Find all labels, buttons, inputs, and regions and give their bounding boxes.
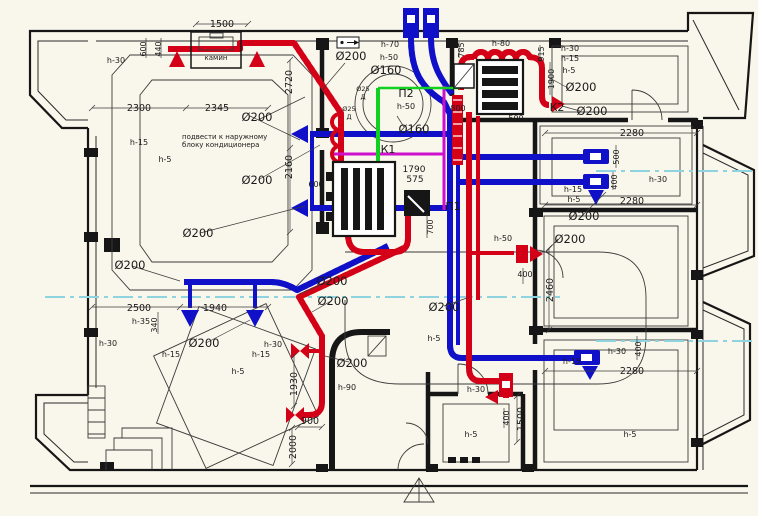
plan-label-h-30: h-30 [107,56,125,65]
plan-label-h-50: h-50 [494,234,512,243]
plan-label-800: 800 [450,104,465,113]
labels-layer: 1500600440каминh-302300234527202160подве… [99,19,667,459]
plan-label-h-5: h-5 [567,195,580,204]
plan-label-2160: 2160 [284,155,295,179]
north-arrow [404,478,434,502]
plan-label-700: 700 [426,219,435,234]
plan-label-785: 785 [457,42,466,57]
plan-label-1900: 1900 [547,69,556,89]
plan-label-2000: 2000 [288,435,299,459]
plan-label-Ø25: Ø25 [356,85,369,93]
plan-label-Д: Д [360,93,365,101]
plan-label-600: 600 [139,41,148,56]
plan-label-h-5: h-5 [231,367,244,376]
plan-label-П2: П2 [398,87,413,100]
plan-label-Ø200: Ø200 [317,294,348,308]
stairs [88,386,172,470]
plan-label-1930: 1930 [289,372,300,396]
ahu-k1 [326,162,395,236]
plan-label-Ø200: Ø200 [241,173,272,187]
plan-label-камин: камин [205,54,228,62]
plan-label-1500: 1500 [516,407,527,431]
plan-label-2280: 2280 [620,366,644,377]
plan-label-900: 900 [301,416,319,427]
plan-label-h-5: h-5 [427,334,440,343]
plan-label-h-30: h-30 [561,44,579,53]
plan-label-915: 915 [537,46,546,61]
plan-label-Ø200: Ø200 [182,226,213,240]
plan-label-h-15: h-15 [563,357,581,366]
plan-label-Ø200: Ø200 [565,80,596,94]
drawing-sheet: Ventilation and air-conditioning duct la… [0,0,758,516]
plan-label-h-90: h-90 [338,383,356,392]
plan-label-К2: К2 [550,101,565,114]
plan-label-1790: 1790 [403,165,426,175]
plan-label-h-5: h-5 [158,155,171,164]
plan-label-Ø200: Ø200 [576,104,607,118]
plan-label-600: 600 [308,180,323,189]
plan-label-П1: П1 [445,200,460,213]
plan-label-Ø200: Ø200 [335,49,366,63]
plan-label-h-5: h-5 [623,430,636,439]
roof-exhaust-stubs [403,8,439,38]
section-lines [45,171,754,341]
plan-label-h-30: h-30 [99,339,117,348]
plan-label-h-15: h-15 [130,138,148,147]
fan-p1 [404,190,430,216]
plan-label-блоку кондиционера: блоку кондиционера [182,141,259,149]
plan-label-Ø160: Ø160 [370,63,401,77]
plan-label-2280: 2280 [620,128,644,139]
plan-label-h-15: h-15 [162,350,180,359]
dimension-line [200,206,305,233]
plan-label-h-70: h-70 [381,40,399,49]
plan-label-h-5: h-5 [464,430,477,439]
plan-label-h-15: h-15 [252,350,270,359]
plan-label-340: 340 [150,317,159,332]
plan-label-h-15: h-15 [561,54,579,63]
plan-label-400: 400 [502,410,511,425]
plan-label-К1: К1 [381,143,396,156]
doors [398,90,662,470]
plan-label-подвести к наружному: подвести к наружному [182,133,267,141]
plan-label-500: 500 [508,114,523,123]
plan-label-Ø200: Ø200 [316,274,347,288]
plan-label-h-35: h-35 [132,317,150,326]
plan-label-Ø200: Ø200 [568,209,599,223]
plan-label-Ø200: Ø200 [241,110,272,124]
plan-label-h-5: h-5 [562,66,575,75]
plan-label-Ø200: Ø200 [188,336,219,350]
plan-label-440: 440 [154,41,163,56]
plan-label-h-50: h-50 [380,53,398,62]
plan-label-1940: 1940 [203,303,227,314]
plan-label-575: 575 [406,175,423,185]
plan-label-h-30: h-30 [467,385,485,394]
plan-label-h-15: h-15 [564,185,582,194]
plan-label-Д: Д [346,113,351,121]
plan-label-Ø25: Ø25 [342,105,355,113]
floor-plan-canvas: Ventilation and air-conditioning duct la… [0,0,758,516]
plan-label-2720: 2720 [284,70,295,94]
plan-label-h-30: h-30 [608,347,626,356]
plan-label-2345: 2345 [205,103,229,114]
plan-label-Ø200: Ø200 [554,232,585,246]
plan-label-500: 500 [612,149,621,164]
plan-label-h-30: h-30 [264,340,282,349]
thermostat-sensor [337,37,359,48]
plan-label-Ø200: Ø200 [428,300,459,314]
plan-label-400: 400 [634,341,643,356]
plan-label-2300: 2300 [127,103,151,114]
plan-label-h-80: h-80 [492,39,510,48]
plan-label-h-30: h-30 [649,175,667,184]
plan-label-2500: 2500 [127,303,151,314]
plan-label-Ø200: Ø200 [114,258,145,272]
plan-label-1500: 1500 [210,19,234,30]
plan-label-400: 400 [517,270,532,279]
plan-label-Ø160: Ø160 [398,122,429,136]
dimension-line [322,63,345,90]
plan-label-2280: 2280 [620,196,644,207]
plan-label-400: 400 [610,174,619,189]
plan-label-2460: 2460 [545,278,556,302]
plan-label-h-50: h-50 [397,102,415,111]
plan-label-Ø200: Ø200 [336,356,367,370]
